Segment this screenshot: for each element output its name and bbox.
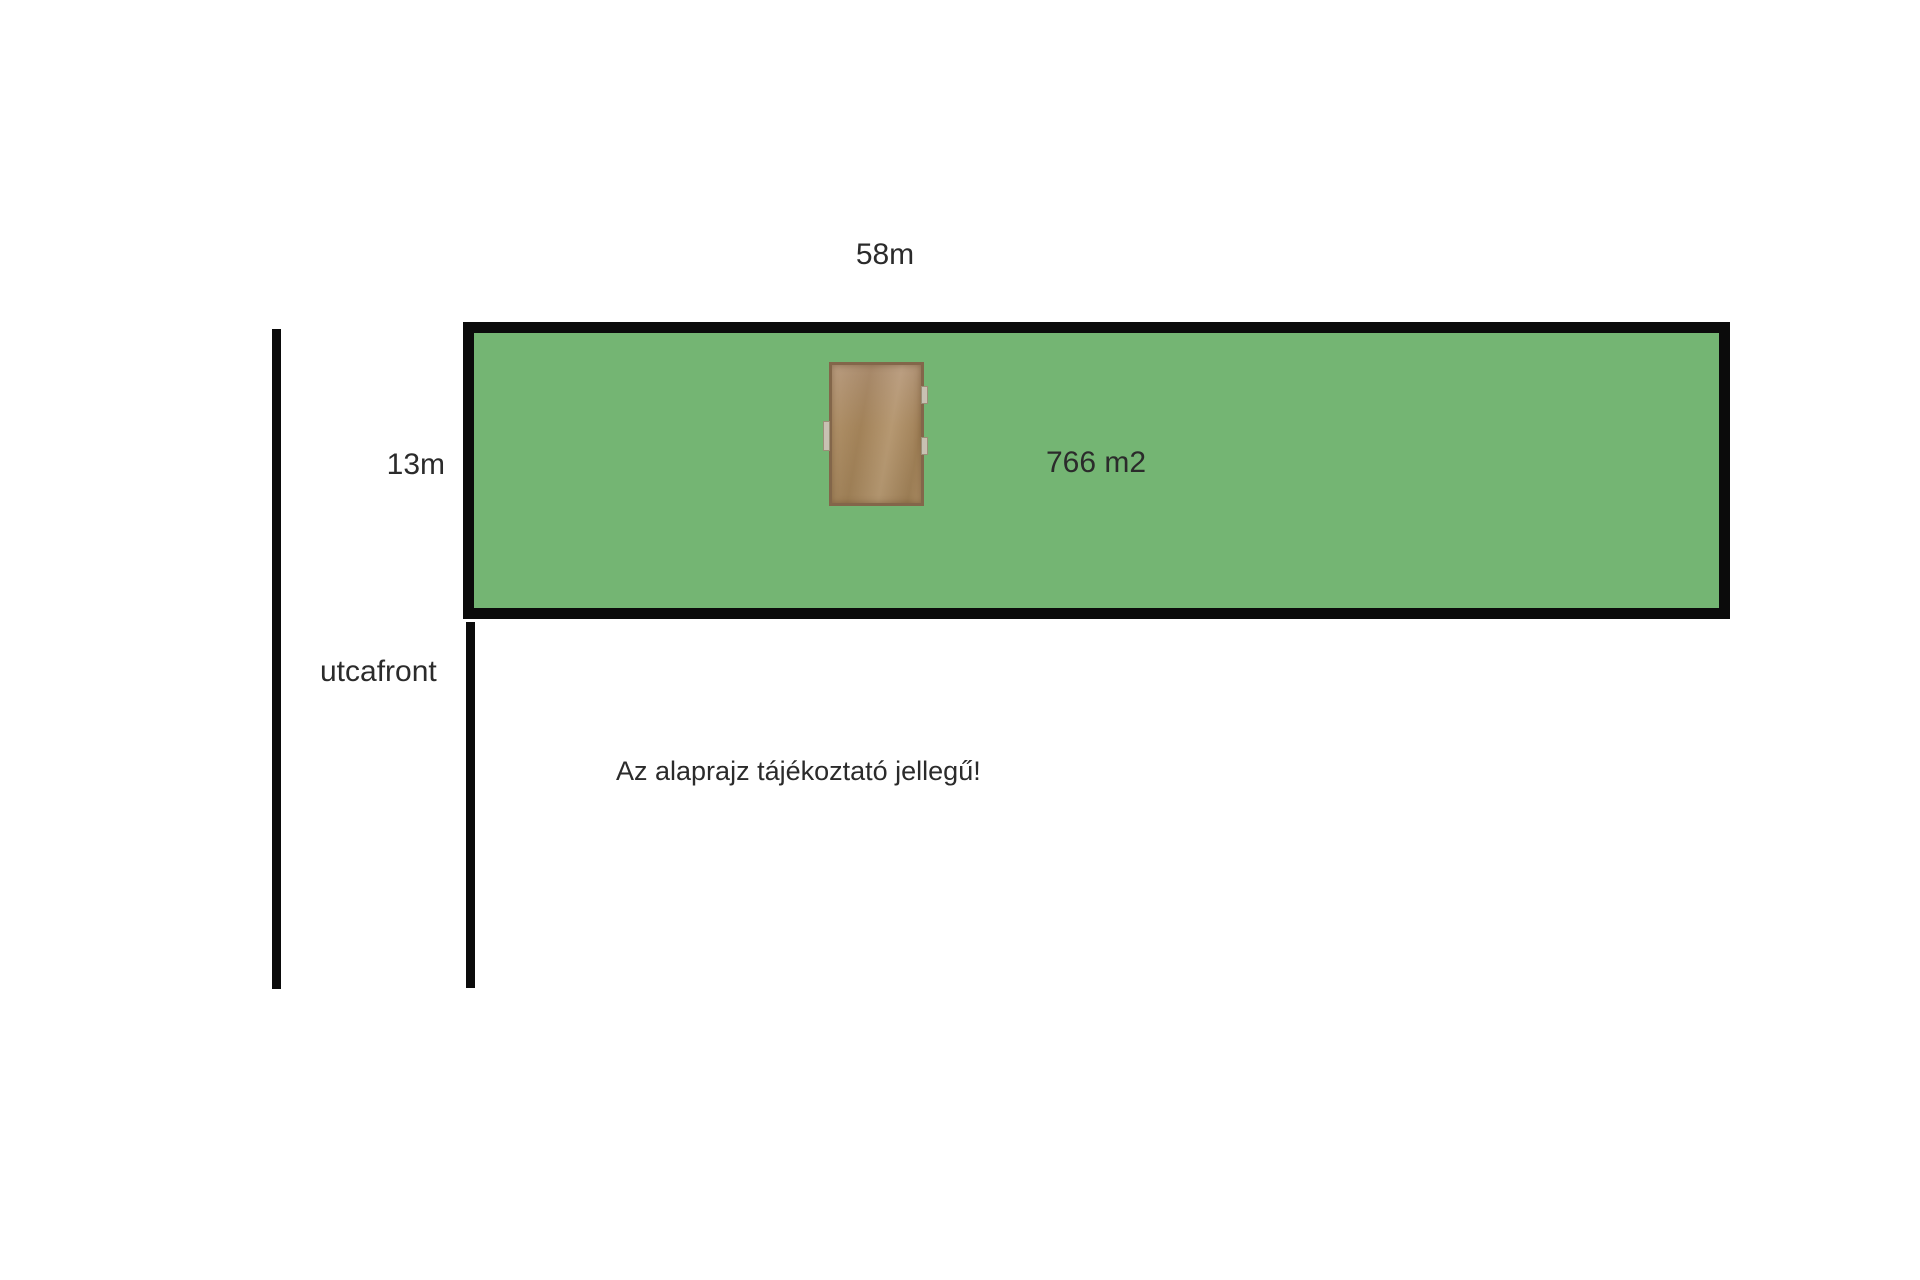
street-front-label: utcafront bbox=[320, 657, 437, 687]
top-dimension-label: 58m bbox=[810, 240, 960, 270]
building-handle-left-icon bbox=[823, 421, 830, 451]
building-handle-right-top-icon bbox=[921, 386, 928, 404]
disclaimer-text: Az alaprajz tájékoztató jellegű! bbox=[616, 758, 981, 785]
side-dimension-label: 13m bbox=[367, 450, 445, 480]
street-line bbox=[272, 329, 281, 989]
plot-plan: 58m 766 m2 13m utcafront Az alaprajz táj… bbox=[0, 0, 1920, 1280]
area-label: 766 m2 bbox=[1046, 448, 1146, 478]
plot-boundary-line bbox=[466, 622, 475, 988]
building-handle-right-bottom-icon bbox=[921, 437, 928, 455]
building-footprint bbox=[829, 362, 924, 506]
